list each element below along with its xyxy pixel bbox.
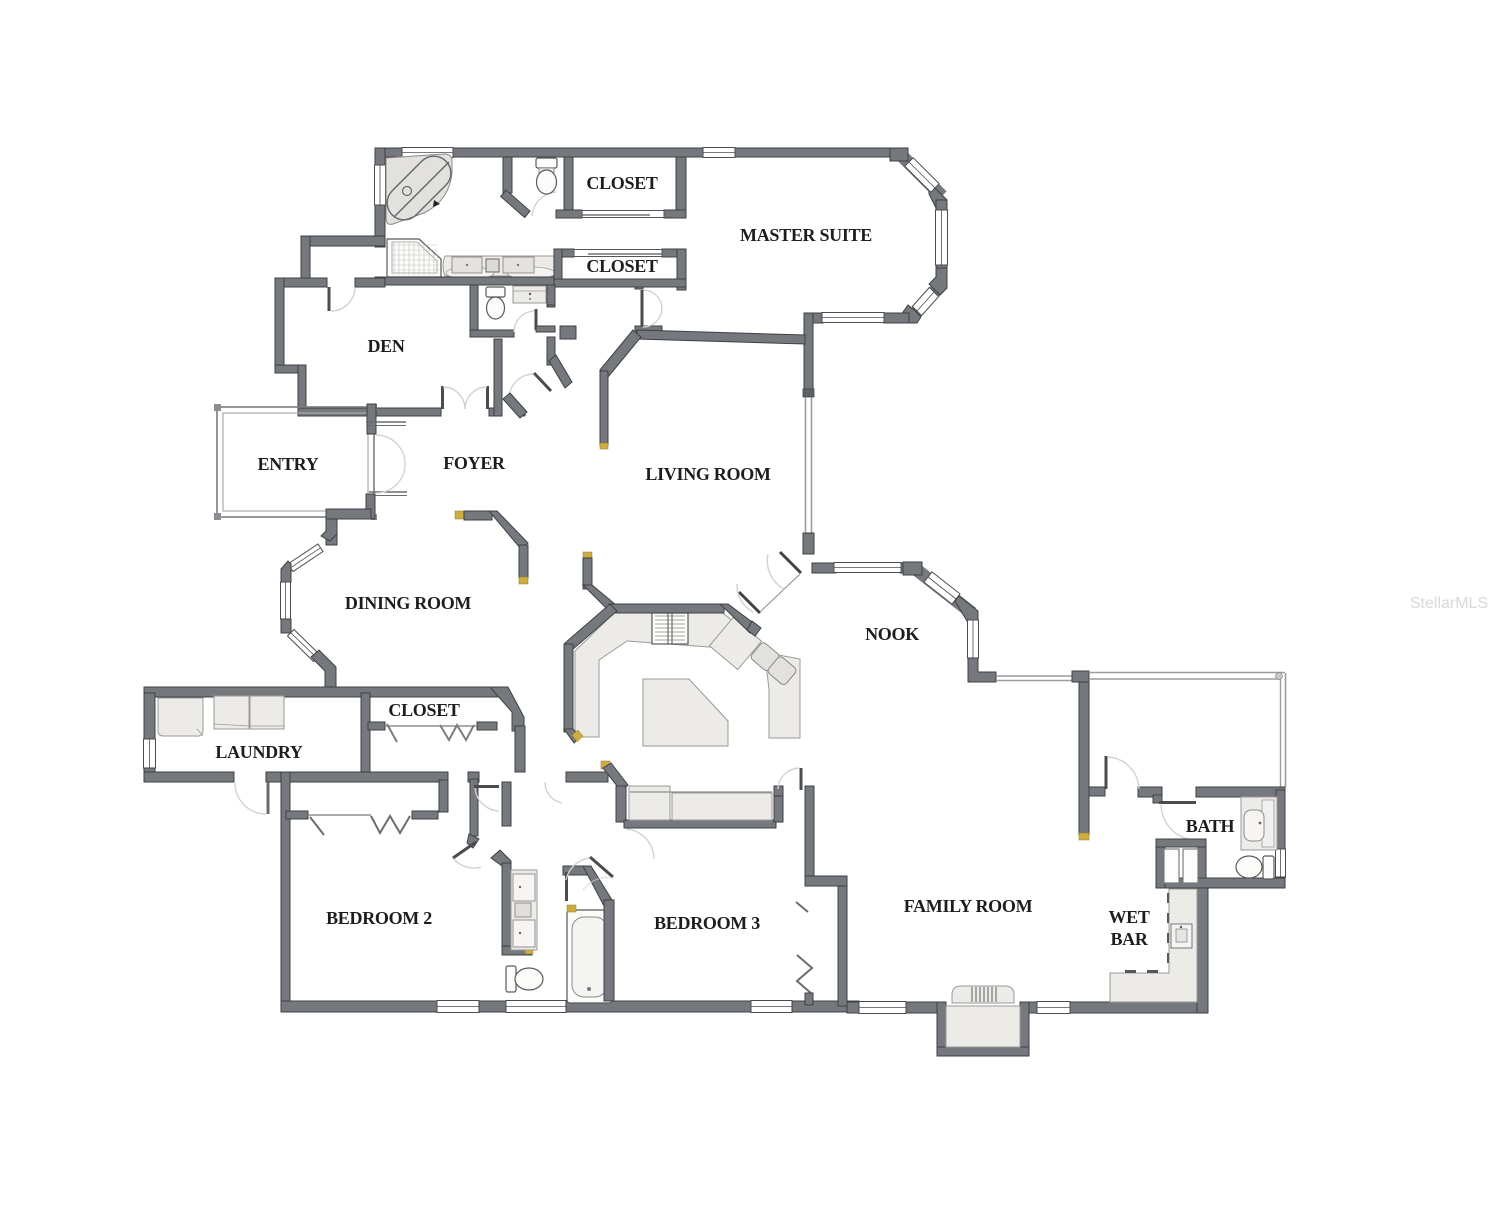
svg-text:FAMILY ROOM: FAMILY ROOM	[904, 896, 1033, 916]
svg-text:DINING ROOM: DINING ROOM	[345, 593, 472, 613]
svg-text:NOOK: NOOK	[865, 624, 919, 644]
svg-text:ENTRY: ENTRY	[258, 454, 319, 474]
svg-text:BATH: BATH	[1186, 816, 1235, 836]
svg-text:BAR: BAR	[1110, 929, 1148, 949]
svg-text:LAUNDRY: LAUNDRY	[215, 742, 303, 762]
svg-text:CLOSET: CLOSET	[586, 256, 658, 276]
svg-text:BEDROOM 2: BEDROOM 2	[326, 908, 432, 928]
svg-text:StellarMLS: StellarMLS	[1410, 595, 1488, 612]
svg-text:FOYER: FOYER	[443, 453, 506, 473]
svg-text:CLOSET: CLOSET	[586, 173, 658, 193]
svg-text:CLOSET: CLOSET	[388, 700, 460, 720]
svg-text:BEDROOM 3: BEDROOM 3	[654, 913, 760, 933]
svg-text:DEN: DEN	[367, 336, 404, 356]
svg-text:WET: WET	[1108, 907, 1149, 927]
svg-text:MASTER SUITE: MASTER SUITE	[740, 225, 872, 245]
svg-text:LIVING ROOM: LIVING ROOM	[645, 464, 771, 484]
